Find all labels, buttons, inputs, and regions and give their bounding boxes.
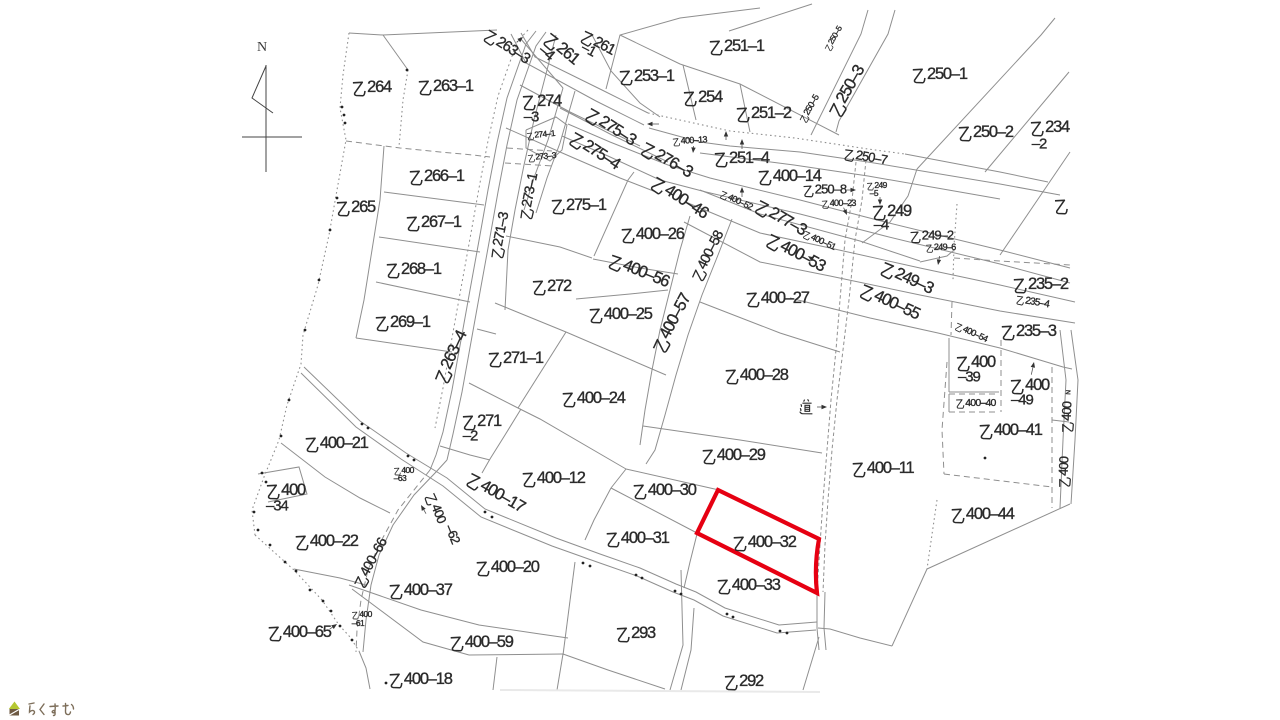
svg-text:N: N xyxy=(257,40,267,55)
svg-text:253–1: 253–1 xyxy=(634,67,675,85)
svg-text:400–22: 400–22 xyxy=(310,532,359,550)
svg-text:272: 272 xyxy=(547,277,572,295)
svg-text:–39: –39 xyxy=(958,368,980,385)
svg-text:400–33: 400–33 xyxy=(732,576,781,594)
svg-text:400–28: 400–28 xyxy=(740,366,789,384)
svg-text:–34: –34 xyxy=(266,497,288,514)
svg-text:271–1: 271–1 xyxy=(503,349,544,367)
svg-text:400: 400 xyxy=(1059,401,1075,421)
svg-text:400–26: 400–26 xyxy=(636,225,685,243)
svg-text:400–27: 400–27 xyxy=(761,289,810,307)
svg-text:–4: –4 xyxy=(874,216,889,233)
svg-text:250–2: 250–2 xyxy=(973,123,1014,141)
svg-text:–61: –61 xyxy=(352,618,365,628)
svg-text:–3: –3 xyxy=(524,108,539,125)
svg-text:263–1: 263–1 xyxy=(433,77,474,95)
svg-text:400: 400 xyxy=(1056,456,1072,476)
svg-text:400–20: 400–20 xyxy=(491,558,540,576)
svg-text:–2: –2 xyxy=(1032,135,1047,152)
svg-text:251–1: 251–1 xyxy=(724,37,765,55)
svg-text:400–21: 400–21 xyxy=(320,434,369,452)
svg-text:400–59: 400–59 xyxy=(465,633,514,651)
svg-text:400–23: 400–23 xyxy=(830,198,857,208)
svg-text:–5: –5 xyxy=(870,188,879,198)
svg-text:400–37: 400–37 xyxy=(404,581,453,599)
svg-text:235–3: 235–3 xyxy=(1016,322,1057,340)
svg-text:400–13: 400–13 xyxy=(680,134,707,145)
svg-text:268–1: 268–1 xyxy=(401,260,442,278)
svg-text:251–4: 251–4 xyxy=(729,149,770,167)
svg-text:400–12: 400–12 xyxy=(537,469,586,487)
svg-text:–49: –49 xyxy=(1011,391,1033,408)
svg-text:271: 271 xyxy=(477,412,502,430)
svg-text:273–3: 273–3 xyxy=(535,150,557,162)
svg-text:250–1: 250–1 xyxy=(927,65,968,83)
svg-text:400–44: 400–44 xyxy=(966,505,1015,523)
svg-text:250–8: 250–8 xyxy=(815,182,847,197)
svg-text:293: 293 xyxy=(631,624,656,642)
svg-text:400–25: 400–25 xyxy=(604,305,653,323)
svg-text:266–1: 266–1 xyxy=(424,167,465,185)
svg-text:400–18: 400–18 xyxy=(404,670,453,688)
svg-text:400–40: 400–40 xyxy=(965,397,996,409)
svg-text:400–41: 400–41 xyxy=(994,421,1043,439)
svg-text:274–1: 274–1 xyxy=(534,128,556,140)
svg-text:–2: –2 xyxy=(463,427,478,444)
svg-text:249: 249 xyxy=(887,202,912,220)
svg-text:234: 234 xyxy=(1045,118,1070,136)
svg-text:400–31: 400–31 xyxy=(621,529,670,547)
svg-text:292: 292 xyxy=(739,672,764,690)
svg-text:269–1: 269–1 xyxy=(390,313,431,331)
svg-text:275–1: 275–1 xyxy=(566,196,607,214)
svg-text:400–65: 400–65 xyxy=(283,623,332,641)
svg-text:400: 400 xyxy=(281,481,306,499)
svg-text:400–30: 400–30 xyxy=(648,481,697,499)
svg-text:–63: –63 xyxy=(394,473,407,483)
svg-text:274: 274 xyxy=(537,92,562,110)
svg-text:264: 264 xyxy=(367,78,392,96)
svg-text:400–29: 400–29 xyxy=(717,446,766,464)
svg-text:400–11: 400–11 xyxy=(867,459,915,477)
svg-text:254: 254 xyxy=(698,88,723,106)
svg-text:249–6: 249–6 xyxy=(934,242,956,252)
svg-text:400–32: 400–32 xyxy=(748,533,797,551)
svg-text:400–24: 400–24 xyxy=(577,389,626,407)
svg-text:251–2: 251–2 xyxy=(751,104,792,122)
svg-text:265: 265 xyxy=(351,198,376,216)
svg-text:235–2: 235–2 xyxy=(1028,275,1069,293)
svg-text:249–2: 249–2 xyxy=(922,228,954,243)
svg-text:267–1: 267–1 xyxy=(421,213,462,231)
